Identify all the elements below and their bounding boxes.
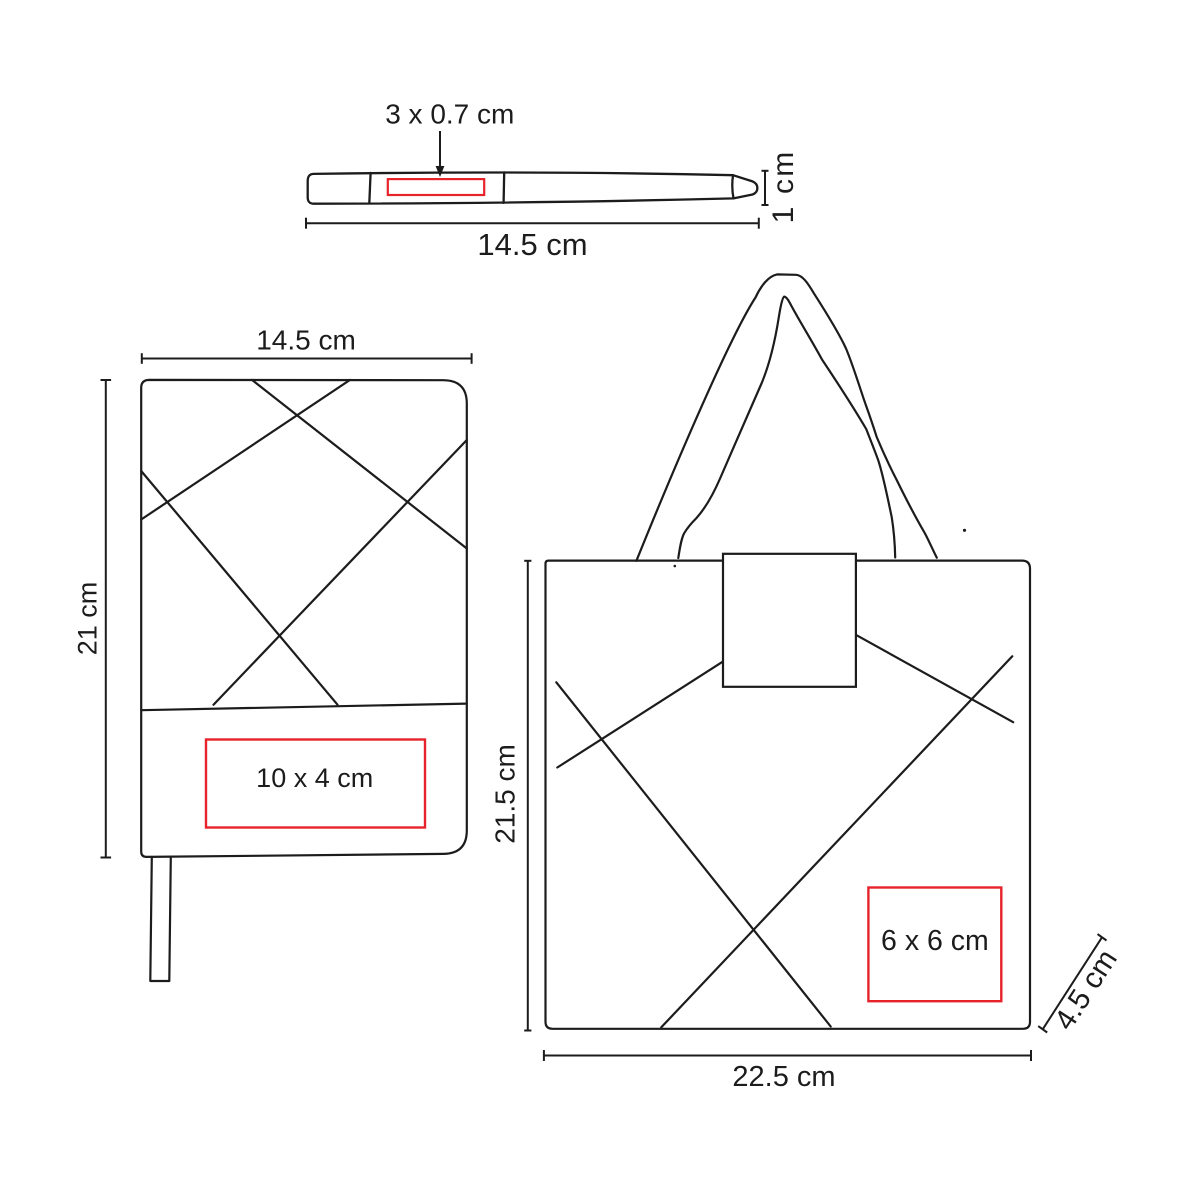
svg-text:22.5 cm: 22.5 cm xyxy=(732,1061,835,1093)
svg-text:21.5 cm: 21.5 cm xyxy=(490,744,521,844)
svg-text:14.5 cm: 14.5 cm xyxy=(256,325,356,356)
svg-text:14.5 cm: 14.5 cm xyxy=(477,227,587,262)
svg-text:6 x 6 cm: 6 x 6 cm xyxy=(881,925,989,957)
svg-text:10 x 4 cm: 10 x 4 cm xyxy=(256,763,373,793)
svg-text:1 cm: 1 cm xyxy=(767,150,800,224)
svg-text:21 cm: 21 cm xyxy=(73,582,103,656)
svg-text:3 x 0.7 cm: 3 x 0.7 cm xyxy=(385,99,514,130)
